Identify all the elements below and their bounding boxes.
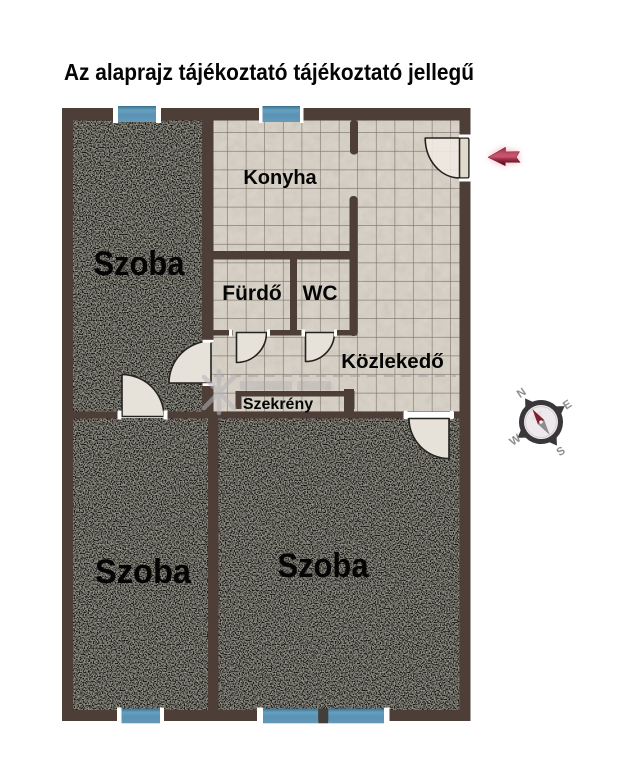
- svg-text:N: N: [515, 386, 529, 401]
- svg-text:Konyha: Konyha: [243, 167, 317, 189]
- svg-text:Közlekedő: Közlekedő: [341, 350, 444, 373]
- svg-text:E: E: [561, 398, 574, 412]
- svg-text:Szoba: Szoba: [94, 245, 186, 283]
- svg-text:Szoba: Szoba: [278, 547, 370, 585]
- svg-text:Szoba: Szoba: [95, 553, 192, 591]
- svg-text:Az alaprajz tájékoztató tájéko: Az alaprajz tájékoztató tájékoztató jell…: [64, 59, 474, 85]
- svg-text:Szekrény: Szekrény: [243, 396, 313, 413]
- svg-text:Fürdő: Fürdő: [222, 282, 281, 305]
- svg-text:S: S: [555, 445, 568, 459]
- svg-text:WC: WC: [303, 282, 338, 305]
